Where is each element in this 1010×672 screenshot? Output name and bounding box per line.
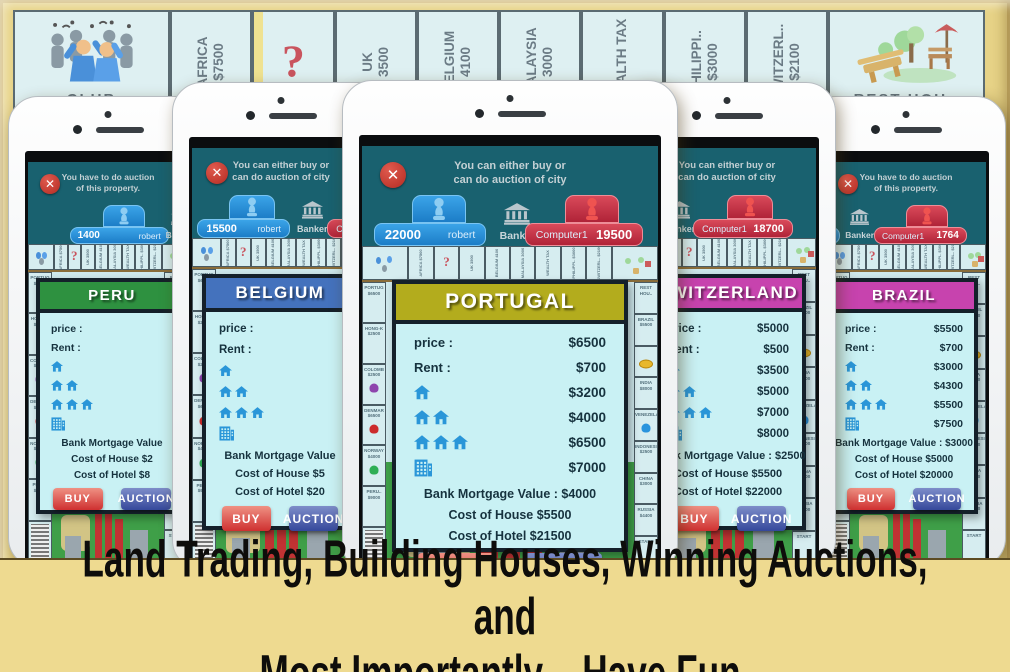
mini-question-icon: ?	[686, 244, 693, 260]
auction-button[interactable]: AUCTION	[289, 506, 338, 531]
mini-board-tile: WEALTH TAX	[742, 238, 757, 267]
card-row-label: Rent :	[219, 344, 252, 356]
jail-prisoner-icon	[31, 524, 49, 559]
auction-button[interactable]: AUCTION	[737, 506, 786, 531]
mini-park-dot	[808, 251, 814, 257]
mini-board-tile: SWITZERL.. $2100	[947, 244, 961, 270]
banker-indicator: Banker	[845, 209, 874, 240]
player-tab-robert-bar: 15500robert	[197, 219, 290, 238]
mini-left-tile: COLOMB$2500	[362, 364, 386, 405]
mini-tile-price: $2500	[363, 372, 385, 378]
mini-tile-name: VENEZELAN..	[635, 412, 657, 418]
card-info-line: Cost of House $5000	[834, 454, 974, 465]
card-row: $5500	[834, 395, 974, 414]
mini-park-dot	[978, 256, 984, 262]
phone-brazil: ✕You have to do auctionof this property.…	[806, 96, 1006, 568]
mini-board-tile: UK 3500	[879, 244, 893, 270]
mini-tile-price: $9000	[363, 495, 385, 501]
mini-board-tile: UK 3500	[251, 238, 266, 267]
house-icons-x2	[414, 410, 449, 424]
dialog-message-line-2: can do auction of city	[362, 174, 658, 188]
mini-board-tile: ?	[236, 238, 251, 267]
front-camera-icon	[73, 125, 82, 134]
mini-tile-text: SWITZERL.. $2100	[778, 238, 783, 267]
mini-right-tile: REST HOU..	[634, 282, 658, 314]
mini-right-tile: INDONESIA$2500	[634, 441, 658, 473]
card-row-value: $5000	[757, 386, 789, 398]
mini-tile-text: UK 3500	[256, 245, 261, 261]
mini-tile-text: BELGIUM 4100	[897, 244, 902, 270]
house-icons-x3	[414, 435, 468, 449]
property-card-body: price :Rent :Bank Mortgage ValueCost of …	[206, 312, 354, 543]
player-tab-robert: 15500robert	[197, 195, 290, 238]
mini-corner-rest-house	[787, 238, 816, 267]
close-button[interactable]: ✕	[380, 162, 406, 188]
card-row	[206, 360, 354, 381]
player-tab-robert-bar: 22000robert	[374, 223, 486, 246]
card-row-label: price :	[51, 323, 83, 335]
buy-button[interactable]: BUY	[222, 506, 271, 531]
card-row	[206, 423, 354, 444]
player-pawn-red-icon	[565, 195, 619, 223]
house-icons-x1	[845, 361, 857, 372]
player-pawn-red-icon	[727, 195, 773, 219]
player-tab-computer1-bar: Computer118700	[693, 219, 793, 238]
mini-corner-rest-house	[612, 246, 658, 280]
rest-house-park-icon	[848, 22, 966, 89]
mini-board-top-row: AFRICA $7500?UK 3500BELGIUM 4100MALAYSIA…	[362, 246, 658, 282]
card-row: price :$6500	[396, 330, 624, 355]
mini-left-tile: PERU..$9000	[362, 486, 386, 527]
buy-button[interactable]: BUY	[847, 488, 895, 510]
player-tab-robert-bar: 1400robert	[70, 227, 169, 244]
camera-dot-icon	[507, 95, 514, 102]
phone-screen: ✕You have to do auctionof this property.…	[25, 151, 191, 565]
player-robert-amount: 15500	[206, 223, 237, 235]
hotel-icon	[845, 417, 859, 431]
mini-tile-text: WEALTH TAX	[301, 240, 306, 266]
close-button[interactable]: ✕	[40, 174, 60, 194]
card-row: $4300	[834, 376, 974, 395]
game-display: ✕You have to do auctionof this property.…	[826, 162, 986, 562]
mini-tile-name: REST HOU..	[635, 285, 657, 296]
mini-tile-price: $4000	[363, 454, 385, 460]
mini-tile-name: START	[963, 533, 985, 539]
mini-board-tile: WEALTH TAX	[920, 244, 934, 270]
mini-left-tile: DENMAR$6500	[362, 405, 386, 446]
mini-crowd-dot	[208, 247, 213, 254]
house-icons-x2	[51, 380, 78, 391]
mini-tile-text: MALAYSIA 3000	[113, 244, 118, 270]
card-info-line: Cost of Hotel $8	[40, 470, 184, 481]
mini-tile-text: SWITZERL.. $2100	[332, 238, 337, 267]
hotel-icon	[51, 417, 65, 431]
phone-portugal: ✕You can either buy orcan do auction of …	[342, 80, 678, 574]
mini-board-tile: PHILIPPI.. $3000	[135, 244, 149, 270]
mini-park-dot	[638, 257, 644, 263]
card-row-value: $8000	[757, 428, 789, 440]
caption-text: Land Trading, Building Houses, Winning A…	[61, 531, 950, 672]
caption-line-2: Most Importantly – Have Fun.	[61, 646, 950, 672]
mini-question-icon: ?	[240, 244, 247, 260]
card-info-line: Bank Mortgage Value : $4000	[396, 487, 624, 501]
card-row: $3200	[396, 380, 624, 405]
card-row-value: $5500	[934, 323, 963, 335]
property-card-title: SWITZERLAND	[658, 283, 798, 303]
card-info-line: Cost of House $5	[206, 468, 354, 480]
mini-pawn-icon	[370, 384, 379, 393]
card-row	[40, 376, 184, 395]
mini-board-right-column: REST HOU..BRAZIL$5500INDIA$8000VENEZELAN…	[634, 282, 658, 568]
banker-indicator: Banker	[297, 201, 328, 234]
speaker-slit-icon	[715, 113, 763, 119]
card-info-line: Cost of House $2	[40, 454, 184, 465]
speaker-row	[343, 109, 677, 118]
player-pawn-blue-icon	[229, 195, 275, 219]
player-robert-name: robert	[448, 229, 475, 241]
property-card-header: BELGIUM	[206, 278, 354, 312]
mini-crowd-dot	[204, 254, 209, 261]
card-row: Rent :$700	[834, 338, 974, 357]
caption-band: Land Trading, Building Houses, Winning A…	[0, 558, 1010, 672]
mini-tile-text: WEALTH TAX	[126, 244, 131, 270]
house-icons-x1	[414, 385, 430, 399]
mini-tile-text: UK 3500	[702, 245, 707, 261]
card-row-value: $5000	[757, 323, 789, 335]
mini-board-tile: MALAYSIA 3000	[510, 246, 535, 280]
mini-board-tile: BELGIUM 4100	[95, 244, 109, 270]
mini-board-tile: ?	[434, 246, 459, 280]
mini-board-tile: PHILIPPI.. $3000	[757, 238, 772, 267]
player-computer1-name: Computer1	[536, 229, 588, 241]
mini-park-dot	[796, 248, 802, 254]
mini-tile-text: SWITZERL.. $2100	[951, 244, 956, 270]
mini-board-tile: ?	[682, 238, 697, 267]
mini-board-tile: MALAYSIA 3000	[906, 244, 920, 270]
mini-corner-club	[362, 246, 408, 280]
mini-tile-text: UK 3500	[884, 249, 889, 265]
hotel-icon	[219, 426, 234, 441]
card-row: $3000	[834, 357, 974, 376]
player-computer1-amount: 18700	[753, 223, 784, 235]
mini-right-tile: VENEZELAN..	[634, 409, 658, 441]
house-icons-x2	[219, 386, 248, 398]
mini-right-tile: BRAZIL$5500	[634, 314, 658, 346]
mini-board-top-row: AFRICA $7500?UK 3500BELGIUM 4100MALAYSIA…	[826, 244, 986, 272]
mini-tile-text: PHILIPPI.. $3000	[938, 244, 943, 270]
house-icons-x2	[845, 380, 872, 391]
mini-crowd-dot	[376, 257, 381, 264]
player-pawn-blue-icon	[103, 205, 145, 227]
mini-tile-text: AFRICA $7500	[226, 239, 231, 266]
mini-left-tile: PORTUG$6500	[362, 282, 386, 323]
mini-board-tile: ?	[68, 244, 82, 270]
mini-board-tile: WEALTH TAX	[535, 246, 560, 280]
card-button-row: BUYAUCTION	[834, 481, 974, 517]
mini-tile-price: $5500	[635, 322, 657, 328]
property-card-belgium: BELGIUMprice :Rent :Bank Mortgage ValueC…	[202, 274, 358, 530]
mini-board-tile: MALAYSIA 3000	[281, 238, 296, 267]
card-row-label: price :	[845, 323, 877, 335]
card-row-value: $6500	[568, 335, 606, 350]
card-row-value: $4300	[934, 380, 963, 392]
mini-tile-text: PHILIPPI.. $3000	[571, 247, 576, 278]
card-row-label: price :	[219, 323, 254, 335]
card-row: price :	[40, 319, 184, 338]
mini-pawn-icon	[642, 423, 651, 432]
mini-question-icon: ?	[71, 248, 78, 264]
house-icons-x3	[219, 407, 264, 419]
mini-tile-text: UK 3500	[470, 255, 475, 271]
speaker-slit-icon	[96, 127, 144, 133]
card-row-value: $4000	[568, 410, 606, 425]
property-card-peru: PERUprice :Rent :Bank Mortgage ValueCost…	[36, 278, 188, 514]
mini-board-tile: PHILIPPI.. $3000	[561, 246, 586, 280]
property-card-title: PORTUGAL	[445, 290, 575, 314]
card-info-line: Bank Mortgage Value	[40, 438, 184, 449]
card-row-value: $7000	[757, 407, 789, 419]
mini-tile-text: BELGIUM 4100	[717, 238, 722, 266]
front-camera-icon	[871, 125, 880, 134]
card-row-value: $700	[940, 342, 963, 354]
card-row: Rent :$700	[396, 355, 624, 380]
mini-tile-text: WEALTH TAX	[546, 250, 551, 276]
card-row-label: Rent :	[51, 342, 81, 354]
card-row	[40, 414, 184, 433]
card-row: price :	[206, 318, 354, 339]
mini-park-dot	[633, 268, 639, 274]
mini-tile-price: $6500	[363, 291, 385, 297]
buy-button[interactable]: BUY	[53, 488, 103, 510]
property-card-title: BRAZIL	[872, 287, 936, 304]
mini-tile-price: $2500	[635, 449, 657, 455]
club-crowd-icon	[37, 20, 147, 89]
mini-tile-text: PHILIPPI.. $3000	[140, 244, 145, 270]
mini-tile-price: $2500	[363, 331, 385, 337]
bank-icon	[850, 209, 869, 230]
property-card-title: PERU	[88, 287, 136, 304]
auction-button[interactable]: AUCTION	[913, 488, 961, 510]
mini-board-tile: MALAYSIA 3000	[727, 238, 742, 267]
mini-question-icon: ?	[443, 254, 450, 270]
mini-board-tile: SWITZERL.. $2100	[772, 238, 787, 267]
mini-board-tile: AFRICA $7500	[408, 246, 433, 280]
mini-left-tile	[28, 521, 52, 562]
card-info-line: Bank Mortgage Value	[206, 450, 354, 462]
player-robert-name: robert	[139, 231, 161, 241]
player-tab-robert: 1400robert	[70, 205, 169, 244]
mini-board-left-column: PORTUG$6500HONG-K$2500COLOMB$2500DENMAR$…	[362, 282, 386, 568]
card-row: $7500	[834, 414, 974, 433]
mini-tile-price: $3000	[635, 481, 657, 487]
mini-board-tile: AFRICA $7500	[852, 244, 866, 270]
front-camera-icon	[692, 111, 701, 120]
front-camera-icon	[475, 109, 484, 118]
phone-screen: ✕You have to do auctionof this property.…	[823, 151, 989, 565]
question-mark-icon: ?	[282, 34, 305, 87]
mini-board-tile: SWITZERL.. $2100	[326, 238, 341, 267]
mini-board-tile: PHILIPPI.. $3000	[311, 238, 326, 267]
property-card-header: BRAZIL	[834, 282, 974, 313]
mini-park-dot	[625, 258, 631, 264]
card-info-line: Bank Mortgage Value : $3000	[834, 438, 974, 449]
mini-tile-price: $8000	[635, 386, 657, 392]
house-icons-x3	[51, 399, 93, 410]
mini-board-tile: SWITZERL.. $2100	[149, 244, 163, 270]
gold-coins-icon	[639, 359, 653, 368]
hotel-icon	[414, 459, 432, 477]
card-row-value: $6500	[568, 435, 606, 450]
card-button-row: BUYAUCTION	[40, 481, 184, 517]
mini-board-tile: BELGIUM 4100	[893, 244, 907, 270]
mini-corner-club	[28, 244, 54, 270]
mini-board-tile: ?	[866, 244, 880, 270]
camera-dot-icon	[105, 111, 112, 118]
card-row: Rent :	[40, 338, 184, 357]
camera-dot-icon	[903, 111, 910, 118]
player-computer1-amount: 19500	[596, 227, 632, 242]
card-row	[206, 381, 354, 402]
mini-park-dot	[800, 257, 806, 263]
card-row-label: Rent :	[845, 342, 875, 354]
front-camera-icon	[246, 111, 255, 120]
mini-tile-text: BELGIUM 4100	[495, 249, 500, 277]
player-tab-robert: 22000robert	[374, 195, 486, 246]
mini-corner-club	[192, 238, 221, 267]
player-pawn-blue-icon	[412, 195, 466, 223]
auction-button[interactable]: AUCTION	[121, 488, 171, 510]
promo-screenshot: CLUBAFRICA$7500?UK3500BELGIUM4100MALAYSI…	[0, 0, 1010, 672]
mini-tile-text: MALAYSIA 3000	[520, 248, 525, 278]
mini-tile-text: AFRICA $7500	[419, 249, 424, 276]
mini-tile-text: WEALTH TAX	[747, 240, 752, 266]
card-row-value: $3200	[568, 385, 606, 400]
mini-tile-text: UK 3500	[86, 249, 91, 265]
mini-board-tile: UK 3500	[459, 246, 484, 280]
mini-left-tile: NORWAY$4000	[362, 445, 386, 486]
camera-dot-icon	[724, 97, 731, 104]
mini-tile-text: WEALTH TAX	[924, 244, 929, 270]
mini-crowd-dot	[39, 258, 44, 265]
mini-board-tile: BELGIUM 4100	[485, 246, 510, 280]
property-card-brazil: BRAZILprice :$5500Rent :$700$3000$4300$5…	[830, 278, 978, 514]
close-button[interactable]: ✕	[206, 162, 228, 184]
card-row: Rent :	[206, 339, 354, 360]
mini-park-dot	[645, 261, 651, 267]
player-robert-name: robert	[257, 224, 281, 234]
player-tab-computer1: Computer11764	[874, 205, 967, 244]
game-display: ✕You have to do auctionof this property.…	[28, 162, 188, 562]
house-icons-x3	[845, 399, 887, 410]
mini-tile-text: AFRICA $7500	[59, 244, 64, 270]
mini-corner-rest-house	[960, 244, 986, 270]
mini-tile-price: $6500	[363, 413, 385, 419]
card-row: $4000	[396, 405, 624, 430]
mini-tile-text: PHILIPPI.. $3000	[316, 238, 321, 267]
mini-board-tile: WEALTH TAX	[122, 244, 136, 270]
mini-right-tile: INDIA$8000	[634, 377, 658, 409]
card-row-value: $500	[763, 344, 789, 356]
player-tab-computer1: Computer118700	[693, 195, 793, 238]
card-info-line: Cost of Hotel $20	[206, 486, 354, 498]
card-row-value: $3500	[757, 365, 789, 377]
mini-board-tile: MALAYSIA 3000	[108, 244, 122, 270]
card-row	[206, 402, 354, 423]
mini-tile-text: BELGIUM 4100	[271, 238, 276, 266]
speaker-slit-icon	[894, 127, 942, 133]
card-row-label: price :	[414, 335, 453, 350]
card-row: $7000	[396, 455, 624, 480]
player-robert-amount: 1400	[78, 230, 100, 241]
player-tab-computer1-bar: Computer11764	[874, 227, 967, 244]
mini-board-tile: AFRICA $7500	[54, 244, 68, 270]
mini-board-tile: BELGIUM 4100	[712, 238, 727, 267]
mini-tile-text: PHILIPPI.. $3000	[762, 238, 767, 267]
bank-icon	[302, 201, 323, 224]
player-computer1-name: Computer1	[702, 224, 747, 234]
player-pawn-red-icon	[906, 205, 948, 227]
mini-right-tile: CHINA$3000	[634, 473, 658, 505]
mini-board-tile: WEALTH TAX	[296, 238, 311, 267]
close-button[interactable]: ✕	[838, 174, 858, 194]
mini-park-dot	[972, 261, 978, 267]
property-card-title: BELGIUM	[236, 283, 325, 303]
mini-crowd-dot	[837, 258, 842, 265]
mini-board-top-row: AFRICA $7500?UK 3500BELGIUM 4100MALAYSIA…	[28, 244, 188, 272]
mini-right-tile	[634, 346, 658, 378]
card-row: $6500	[396, 430, 624, 455]
banker-label: Banker	[297, 224, 328, 234]
card-row: price :$5500	[834, 319, 974, 338]
caption-line-1: Land Trading, Building Houses, Winning A…	[61, 531, 950, 645]
mini-board-tile: UK 3500	[81, 244, 95, 270]
house-icons-x1	[51, 361, 63, 372]
mini-crowd-dot	[382, 265, 387, 272]
dialog-header-panel: ✕You have to do auctionof this property.…	[826, 162, 986, 244]
property-card-body: price :$5500Rent :$700$3000$4300$5500$75…	[834, 313, 974, 521]
phone-screen: ✕You can either buy orcan do auction of …	[359, 135, 661, 571]
card-row-value: $7500	[934, 418, 963, 430]
card-row-label: Rent :	[414, 360, 451, 375]
property-card-body: price :Rent :Bank Mortgage ValueCost of …	[40, 313, 184, 521]
card-info-line: Cost of House $5500	[396, 508, 624, 522]
speaker-slit-icon	[269, 113, 317, 119]
property-card-portugal: PORTUGALprice :$6500Rent :$700$3200$4000…	[392, 280, 628, 552]
mini-tile-text: BELGIUM 4100	[99, 244, 104, 270]
property-card-header: PORTUGAL	[396, 284, 624, 324]
mini-tile-name: PORTUG	[363, 285, 385, 291]
speaker-row	[807, 125, 1005, 134]
player-computer1-amount: 1764	[937, 230, 959, 241]
player-robert-amount: 22000	[385, 227, 421, 242]
mini-board-tile: AFRICA $7500	[221, 238, 236, 267]
mini-board-tile: PHILIPPI.. $3000	[933, 244, 947, 270]
mini-board-tile: SWITZERL.. $2100	[586, 246, 611, 280]
player-computer1-name: Computer1	[882, 231, 924, 241]
card-row	[40, 357, 184, 376]
dialog-message: You can either buy orcan do auction of c…	[362, 146, 658, 187]
mini-tile-text: MALAYSIA 3000	[732, 238, 737, 267]
mini-question-icon: ?	[869, 248, 876, 264]
mini-pawn-icon	[370, 424, 379, 433]
dialog-header-panel: ✕You can either buy orcan do auction of …	[362, 146, 658, 246]
card-row-value: $5500	[934, 399, 963, 411]
mini-board-tile: UK 3500	[697, 238, 712, 267]
player-tab-computer1-bar: Computer119500	[525, 223, 643, 246]
mini-park-dot	[968, 253, 974, 259]
mini-board-tile: BELGIUM 4100	[266, 238, 281, 267]
card-row	[40, 395, 184, 414]
